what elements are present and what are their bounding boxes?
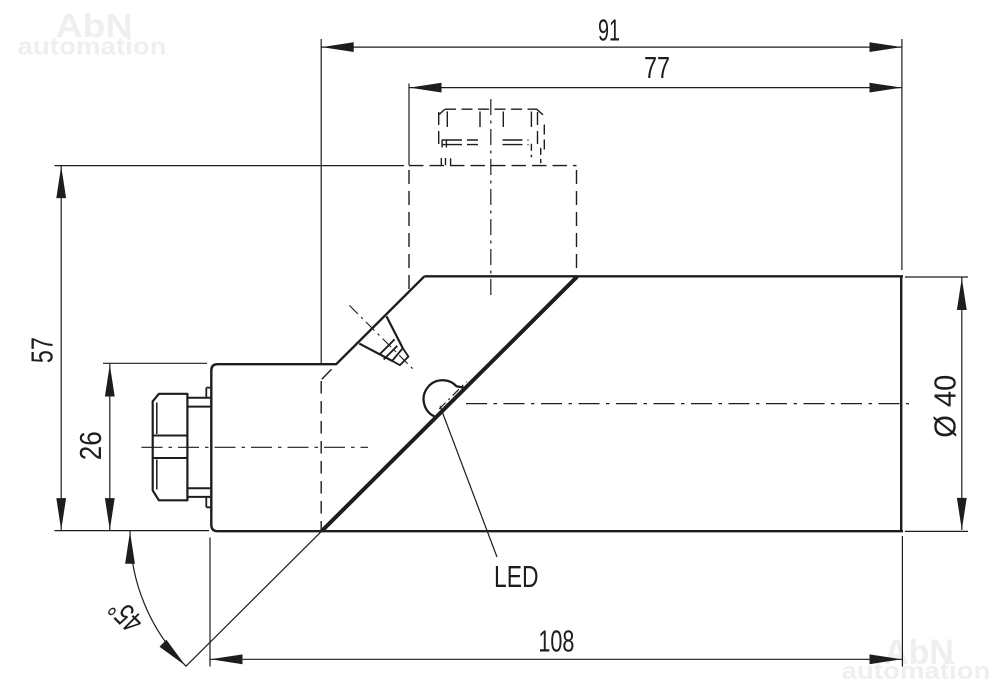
svg-text:LED: LED bbox=[494, 559, 539, 594]
svg-text:77: 77 bbox=[644, 50, 670, 85]
svg-text:108: 108 bbox=[538, 623, 574, 658]
svg-text:automation: automation bbox=[842, 658, 991, 685]
svg-text:Ø 40: Ø 40 bbox=[928, 375, 963, 438]
svg-text:automation: automation bbox=[18, 34, 167, 61]
svg-text:57: 57 bbox=[24, 337, 59, 363]
svg-text:91: 91 bbox=[598, 13, 620, 48]
svg-text:26: 26 bbox=[73, 431, 108, 460]
